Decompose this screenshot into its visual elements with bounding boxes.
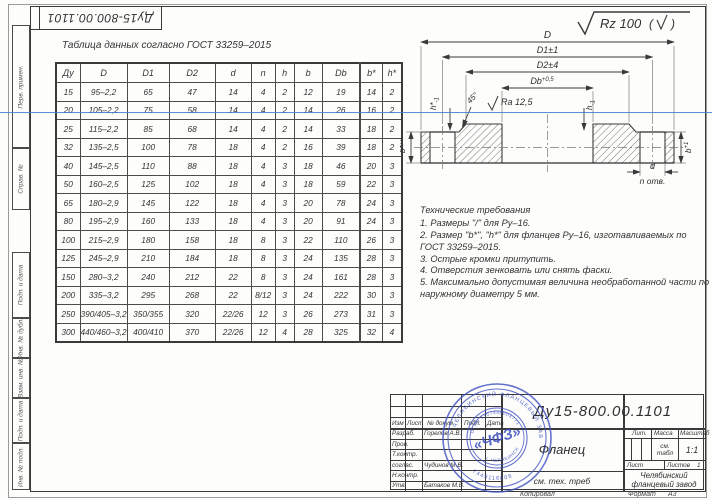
tb-role: Утв. [392, 482, 406, 489]
table-cell: 22 [215, 286, 251, 305]
table-header-cell: d [215, 63, 251, 83]
table-row: 125245–2,9210184188324135283 [56, 249, 402, 268]
sheets-value: 1 [697, 462, 701, 469]
table-cell: 4 [251, 175, 275, 194]
tb-role: соглас. [392, 462, 414, 469]
margin-box-perv-primen: Перв. примен. [12, 25, 30, 148]
table-cell: 135 [322, 249, 360, 268]
table-cell: 32 [360, 323, 382, 342]
table-cell: 18 [215, 212, 251, 231]
table-cell: 335–3,2 [80, 286, 127, 305]
table-cell: 24 [294, 286, 322, 305]
table-cell: 2 [275, 120, 294, 139]
table-cell: 4 [251, 157, 275, 176]
table-cell: 3 [382, 268, 402, 287]
table-cell: 22 [294, 231, 322, 250]
table-cell: 80 [56, 212, 80, 231]
table-cell: 3 [275, 268, 294, 287]
margin-box-inv-dubl: Инв. № дубл. [12, 318, 30, 358]
table-cell: 180 [127, 231, 169, 250]
table-cell: 24 [294, 249, 322, 268]
table-cell: 350/355 [127, 305, 169, 324]
tb-line [664, 460, 665, 469]
table-row: 300440/460–3,2400/41037022/2612428325324 [56, 323, 402, 342]
table-row: 1595–2,2654714421219142 [56, 83, 402, 102]
table-cell: 145–2,5 [80, 157, 127, 176]
table-cell: 180–2,9 [80, 194, 127, 213]
table-cell: 65 [127, 83, 169, 102]
table-cell: 12 [294, 83, 322, 102]
table-cell: 14 [360, 83, 382, 102]
table-header-row: ДуDD1D2dnhbDbb*h* [56, 63, 402, 83]
table-cell: 325 [322, 323, 360, 342]
margin-label: Подп. и дата [18, 400, 25, 441]
table-header-cell: Ду [56, 63, 80, 83]
table-cell: 28 [360, 268, 382, 287]
table-cell: 20 [294, 212, 322, 231]
table-cell: 22/26 [215, 305, 251, 324]
table-cell: 125 [56, 249, 80, 268]
table-cell: 2 [275, 101, 294, 120]
table-cell: 4 [382, 323, 402, 342]
table-cell: 4 [251, 194, 275, 213]
table-cell: 78 [322, 194, 360, 213]
table-cell: 280–3,2 [80, 268, 127, 287]
section-left-hub [455, 124, 502, 163]
table-cell: 320 [169, 305, 215, 324]
table-cell: 210 [127, 249, 169, 268]
table-cell: 19 [322, 83, 360, 102]
table-cell: 91 [322, 212, 360, 231]
table-cell: 15 [56, 83, 80, 102]
scan-artifact-line [0, 112, 712, 113]
margin-box-vzam-inv: Взам. инв. № [12, 358, 30, 398]
table-cell: 215–2,9 [80, 231, 127, 250]
table-cell: 30 [360, 286, 382, 305]
table-cell: 39 [322, 138, 360, 157]
table-cell: 31 [360, 305, 382, 324]
table-cell: 3 [382, 212, 402, 231]
table-cell: 12 [251, 323, 275, 342]
scale-value: 1:1 [679, 439, 705, 460]
tb-line [641, 438, 642, 460]
table-cell: 33 [322, 120, 360, 139]
table-cell: 32 [56, 138, 80, 157]
table-cell: 24 [360, 194, 382, 213]
table-row: 50160–2,512510218431859223 [56, 175, 402, 194]
table-cell: 250 [56, 305, 80, 324]
corner-doc-number-box: Ду15-800.00.1101 [30, 6, 162, 30]
table-cell: 102 [169, 175, 215, 194]
table-cell: 16 [294, 138, 322, 157]
table-cell: 295 [127, 286, 169, 305]
paren-open: ( [649, 17, 655, 31]
table-cell: 3 [382, 305, 402, 324]
table-cell: 18 [215, 249, 251, 268]
table-cell: 18 [360, 138, 382, 157]
table-header-cell: n [251, 63, 275, 83]
table-cell: 3 [275, 157, 294, 176]
margin-label: Подп. и дата [18, 265, 25, 306]
table-cell: 125 [127, 175, 169, 194]
dim-n-holes: n отв. [640, 176, 666, 186]
table-cell: 3 [275, 231, 294, 250]
mass-value: см. табл [652, 439, 678, 460]
table-cell: 18 [215, 175, 251, 194]
table-cell: 18 [294, 175, 322, 194]
table-cell: 50 [56, 175, 80, 194]
table-cell: 268 [169, 286, 215, 305]
sheets-label: Листов [667, 462, 690, 469]
margin-label: Перв. примен. [18, 65, 25, 108]
table-cell: 16 [360, 101, 382, 120]
table-cell: 3 [275, 212, 294, 231]
table-cell: 14 [215, 120, 251, 139]
paren-close: ) [669, 17, 675, 31]
table-cell: 212 [169, 268, 215, 287]
table-cell: 3 [275, 175, 294, 194]
dim-b: b+1 [684, 142, 693, 153]
table-cell: 240 [127, 268, 169, 287]
table-cell: 25 [56, 120, 80, 139]
table-cell: 59 [322, 175, 360, 194]
drawing-sheet: Перв. примен. Справ. № Подп. и дата Инв.… [0, 0, 712, 500]
table-row: 80195–2,916013318432091243 [56, 212, 402, 231]
tb-izm: Изм [392, 420, 404, 427]
table-cell: 135–2,5 [80, 138, 127, 157]
table-cell: 3 [382, 286, 402, 305]
table-row: 20105–2,2755814421426162 [56, 101, 402, 120]
table-cell: 8 [251, 268, 275, 287]
table-cell: 160–2,5 [80, 175, 127, 194]
table-cell: 8 [251, 249, 275, 268]
tb-role: Пров. [392, 441, 409, 448]
table-cell: 26 [294, 305, 322, 324]
table-cell: 47 [169, 83, 215, 102]
flange-section-drawing: Rz 100 ( ) [400, 10, 707, 210]
table-cell: 150 [56, 268, 80, 287]
table-cell: 3 [382, 249, 402, 268]
table-cell: 4 [251, 101, 275, 120]
table-cell: 18 [215, 157, 251, 176]
table-row: 250390/405–3,2350/35532022/2612326273313 [56, 305, 402, 324]
table-cell: 20 [56, 101, 80, 120]
dim-h: h-1 [585, 100, 597, 110]
table-cell: 85 [127, 120, 169, 139]
table-row: 25115–2,2856814421433182 [56, 120, 402, 139]
table-cell: 4 [251, 120, 275, 139]
company-name: Челябинский фланцевый завод [623, 469, 705, 491]
table-cell: 46 [322, 157, 360, 176]
table-cell: 68 [169, 120, 215, 139]
table-row: 40145–2,51108818431846203 [56, 157, 402, 176]
table-header-cell: b [294, 63, 322, 83]
table-caption: Таблица данных согласно ГОСТ 33259–2015 [62, 40, 271, 51]
table-cell: 28 [294, 323, 322, 342]
table-cell: 24 [294, 268, 322, 287]
table-cell: 14 [294, 120, 322, 139]
table-cell: 273 [322, 305, 360, 324]
table-cell: 400/410 [127, 323, 169, 342]
flange-table-body: 1595–2,265471442121914220105–2,275581442… [56, 83, 402, 343]
table-cell: 100 [56, 231, 80, 250]
table-cell: 40 [56, 157, 80, 176]
table-cell: 115–2,2 [80, 120, 127, 139]
table-cell: 133 [169, 212, 215, 231]
table-cell: 110 [127, 157, 169, 176]
table-cell: 8 [251, 231, 275, 250]
dim-Ra: Ra 12,5 [501, 97, 534, 107]
table-header-cell: D2 [169, 63, 215, 83]
table-cell: 4 [251, 83, 275, 102]
table-header-cell: D [80, 63, 127, 83]
tech-req-item: 2. Размер "b*", "h*" для фланцев Ру–16, … [420, 230, 712, 254]
table-cell: 24 [360, 212, 382, 231]
table-cell: 26 [360, 231, 382, 250]
margin-box-inv-podl: Инв. № подл. [12, 443, 30, 490]
table-cell: 3 [275, 286, 294, 305]
company-seal: ЧЕЛЯБИНСКИЙ ФЛАНЦЕВЫЙ ЗАВОД 7449116808 О… [436, 378, 558, 498]
roughness-ra-symbol: Ra 12,5 [488, 96, 534, 110]
margin-label: Инв. № дубл. [18, 318, 25, 358]
dim-D1: D1±1 [537, 45, 558, 55]
scale-label: Масштаб [680, 430, 709, 437]
dim-chamfer: 45° [465, 90, 480, 105]
table-cell: 200 [56, 286, 80, 305]
table-cell: 22 [215, 268, 251, 287]
table-cell: 26 [322, 101, 360, 120]
tb-list: Лист [407, 420, 423, 427]
table-row: 65180–2,914512218432078243 [56, 194, 402, 213]
tech-req-item: 4. Отверстия зенковать или снять фаски. [420, 265, 712, 277]
table-cell: 300 [56, 323, 80, 342]
table-cell: 58 [169, 101, 215, 120]
table-cell: 20 [360, 157, 382, 176]
table-cell: 3 [275, 194, 294, 213]
table-cell: 18 [360, 120, 382, 139]
section-right-hub [593, 124, 640, 163]
margin-box-podp-data-1: Подп. и дата [12, 252, 30, 318]
dim-b-star: b*+1 [400, 139, 407, 153]
sheet-label: Лист [627, 462, 643, 469]
tech-req-item: 5. Максимально допустимая величина необр… [420, 277, 712, 301]
table-cell: 28 [360, 249, 382, 268]
table-cell: 14 [215, 101, 251, 120]
table-cell: 145 [127, 194, 169, 213]
margin-box-podp-data-2: Подп. и дата [12, 398, 30, 443]
footer-format-label: Формат [628, 491, 656, 498]
table-cell: 22 [360, 175, 382, 194]
table-cell: 195–2,9 [80, 212, 127, 231]
margin-box-sprav-no: Справ. № [12, 148, 30, 210]
tech-req-item: 3. Острые кромки притупить. [420, 254, 712, 266]
table-cell: 4 [251, 138, 275, 157]
dim-Db: Db+0,5 [530, 76, 554, 86]
table-cell: 105–2,2 [80, 101, 127, 120]
tb-line [422, 395, 423, 491]
table-cell: 3 [382, 231, 402, 250]
table-cell: 65 [56, 194, 80, 213]
mass-label: Масса [654, 430, 673, 437]
table-header-cell: Db [322, 63, 360, 83]
table-cell: 2 [275, 83, 294, 102]
dim-D2: D2±4 [537, 60, 558, 70]
dim-D: D [544, 30, 551, 41]
table-cell: 3 [275, 249, 294, 268]
table-cell: 158 [169, 231, 215, 250]
table-cell: 75 [127, 101, 169, 120]
table-cell: 110 [322, 231, 360, 250]
table-cell: 3 [275, 305, 294, 324]
tb-role: Разраб. [392, 430, 415, 437]
table-cell: 18 [294, 157, 322, 176]
table-row: 100215–2,9180158188322110263 [56, 231, 402, 250]
table-cell: 8/12 [251, 286, 275, 305]
margin-label: Инв. № подл. [18, 446, 25, 486]
table-cell: 160 [127, 212, 169, 231]
technical-requirements: Технические требования 1. Размеры "/" дл… [420, 205, 712, 301]
table-cell: 14 [294, 101, 322, 120]
table-row: 200335–3,2295268228/12324222303 [56, 286, 402, 305]
table-cell: 2 [275, 138, 294, 157]
table-cell: 100 [127, 138, 169, 157]
table-cell: 370 [169, 323, 215, 342]
table-cell: 18 [215, 194, 251, 213]
lit-label: Лит. [632, 430, 647, 437]
table-cell: 4 [275, 323, 294, 342]
table-cell: 95–2,2 [80, 83, 127, 102]
flange-data-table: ДуDD1D2dnhbDbb*h* 1595–2,265471442121914… [55, 62, 403, 343]
table-cell: 18 [215, 231, 251, 250]
table-cell: 184 [169, 249, 215, 268]
table-cell: 4 [251, 212, 275, 231]
margin-label: Взам. инв. № [18, 358, 25, 398]
table-cell: 22/26 [215, 323, 251, 342]
table-cell: 222 [322, 286, 360, 305]
table-cell: 78 [169, 138, 215, 157]
table-row: 32135–2,51007818421639182 [56, 138, 402, 157]
table-cell: 12 [251, 305, 275, 324]
svg-text:7449116808: 7449116808 [471, 469, 513, 482]
tb-role: Н.контр. [392, 472, 419, 479]
table-cell: 245–2,9 [80, 249, 127, 268]
tb-line [631, 438, 632, 460]
table-header-cell: h [275, 63, 294, 83]
footer-format-value: А3 [668, 491, 677, 498]
table-cell: 390/405–3,2 [80, 305, 127, 324]
table-cell: 18 [215, 138, 251, 157]
tb-role: Т.контр. [392, 451, 417, 458]
table-header-cell: b* [360, 63, 382, 83]
roughness-general-label: Rz 100 [600, 16, 642, 31]
table-row: 150280–3,2240212228324161283 [56, 268, 402, 287]
roughness-general-symbol: Rz 100 ( ) [578, 12, 690, 34]
table-cell: 440/460–3,2 [80, 323, 127, 342]
table-header-cell: D1 [127, 63, 169, 83]
tech-req-item: 1. Размеры "/" для Ру–16. [420, 218, 712, 230]
tech-req-title: Технические требования [420, 205, 712, 217]
table-cell: 20 [294, 194, 322, 213]
table-cell: 88 [169, 157, 215, 176]
table-cell: 161 [322, 268, 360, 287]
margin-label: Справ. № [18, 164, 25, 194]
table-cell: 122 [169, 194, 215, 213]
corner-doc-number: Ду15-800.00.1101 [39, 7, 161, 29]
table-cell: 14 [215, 83, 251, 102]
dim-h-star: h*-1 [429, 97, 441, 110]
